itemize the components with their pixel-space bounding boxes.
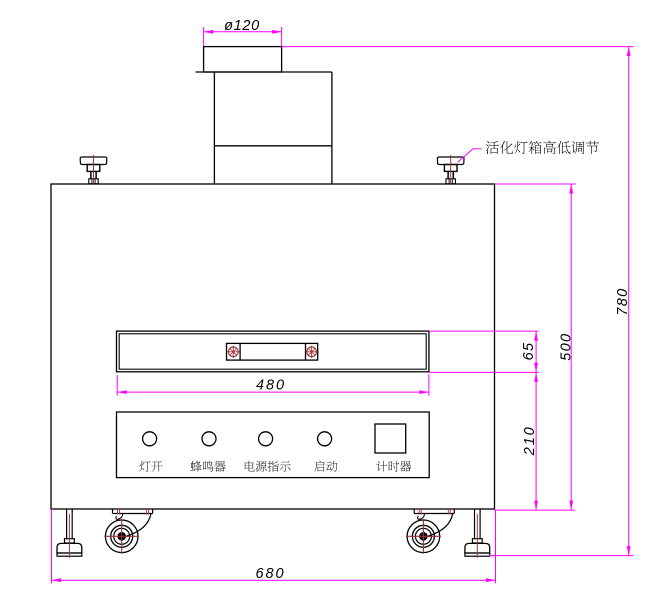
svg-text:780: 780 [615,288,631,316]
svg-text:65: 65 [521,342,537,361]
svg-text:500: 500 [559,333,575,361]
svg-text:210: 210 [522,425,538,456]
svg-text:680: 680 [256,566,286,582]
svg-text:480: 480 [256,377,286,393]
svg-text:ø120: ø120 [224,18,260,34]
